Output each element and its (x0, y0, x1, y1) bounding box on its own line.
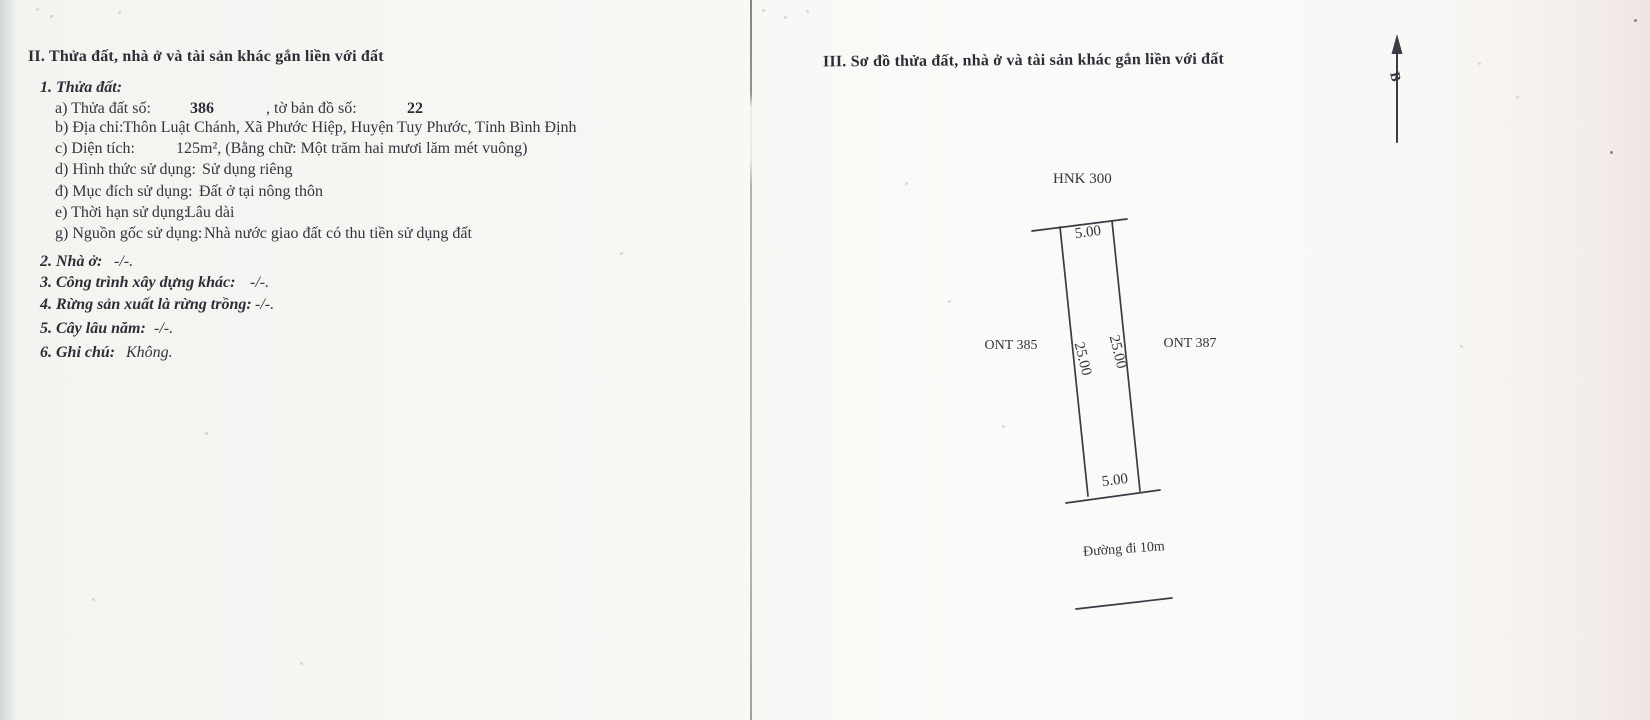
field-address: b) Địa chỉ: Thôn Luật Chánh, Xã Phước Hi… (0, 119, 760, 139)
field-label: đ) Mục đích sử dụng: (55, 183, 193, 201)
area-value: 125m², (Bằng chữ: Một trăm hai mươi lăm … (176, 140, 527, 158)
item-6-notes: 6. Ghi chú: Không. (0, 344, 760, 364)
item-value: -/-. (250, 274, 269, 292)
field-use-term: e) Thời hạn sử dụng: Lâu dài (0, 204, 760, 224)
field-use-origin: g) Nguồn gốc sử dụng: Nhà nước giao đất … (0, 225, 760, 245)
item-5-perennial-trees: 5. Cây lâu năm: -/-. (0, 320, 760, 340)
use-term-value: Lâu dài (186, 204, 234, 222)
scanned-land-certificate-page: II. Thửa đất, nhà ở và tài sản khác gắn … (0, 0, 1650, 720)
speckle (36, 8, 39, 11)
item-4-production-forest: 4. Rừng sản xuất là rừng trồng: -/-. (0, 296, 760, 316)
use-origin-value: Nhà nước giao đất có thu tiền sử dụng đấ… (204, 225, 472, 243)
section-3-heading: III. Sơ đồ thửa đất, nhà ở và tài sản kh… (823, 51, 1224, 72)
field-label: e) Thời hạn sử dụng: (55, 204, 188, 222)
speckle (1516, 96, 1519, 99)
dimension-right: 25.00 (1105, 334, 1130, 371)
section-3-heading-line: III. Sơ đồ thửa đất, nhà ở và tài sản kh… (0, 52, 900, 72)
item-2-house: 2. Nhà ở: -/-. (0, 253, 760, 273)
road-edge-line (1076, 598, 1172, 609)
item-label: 6. Ghi chú: (40, 344, 115, 362)
speckle (948, 300, 951, 303)
address-value: Thôn Luật Chánh, Xã Phước Hiệp, Huyện Tu… (123, 119, 577, 137)
speckle (905, 182, 908, 185)
map-sheet-value: 22 (407, 100, 423, 118)
use-form-value: Sử dụng riêng (202, 161, 292, 179)
subsection-1-heading: 1. Thửa đất: (40, 79, 122, 97)
field-area: c) Diện tích: 125m², (Bằng chữ: Một trăm… (0, 140, 760, 160)
speckle (118, 11, 121, 14)
dimension-top: 5.00 (1074, 223, 1102, 243)
road-label: Đường đi 10m (1083, 539, 1166, 561)
speckle (1460, 345, 1463, 348)
speckle (92, 598, 95, 601)
field-label: , tờ bản đồ số: (266, 100, 357, 118)
item-value: -/-. (154, 320, 173, 338)
item-label: 3. Công trình xây dựng khác: (40, 274, 235, 292)
speckle (762, 9, 765, 12)
item-value: Không. (126, 344, 173, 362)
item-3-other-constructions: 3. Công trình xây dựng khác: -/-. (0, 274, 760, 294)
speckle (784, 16, 787, 19)
dimension-bottom: 5.00 (1101, 471, 1129, 491)
speckle (806, 10, 809, 13)
item-label: 5. Cây lâu năm: (40, 320, 146, 338)
item-value: -/-. (114, 253, 133, 271)
dimension-left: 25.00 (1070, 341, 1095, 378)
field-label: g) Nguồn gốc sử dụng: (55, 225, 202, 243)
speckle (1002, 425, 1005, 428)
subsection-1-heading-line: 1. Thửa đất: (0, 79, 760, 99)
neighbor-label-left: ONT 385 (984, 338, 1037, 354)
field-label: c) Diện tích: (55, 140, 135, 158)
speckle (1634, 19, 1637, 22)
neighbor-label-right: ONT 387 (1163, 336, 1216, 352)
field-label: b) Địa chỉ: (55, 119, 123, 137)
field-use-form: d) Hình thức sử dụng: Sử dụng riêng (0, 161, 760, 181)
north-arrow-icon (1392, 34, 1403, 54)
field-use-purpose: đ) Mục đích sử dụng: Đất ở tại nông thôn (0, 183, 760, 203)
speckle (205, 432, 208, 435)
speckle (1478, 62, 1481, 65)
speckle (300, 662, 303, 665)
field-label: d) Hình thức sử dụng: (55, 161, 196, 179)
neighbor-label-top: HNK 300 (1053, 171, 1112, 188)
plot-bottom-edge (1066, 490, 1160, 503)
speckle (1610, 151, 1613, 154)
item-label: 2. Nhà ở: (40, 253, 102, 271)
item-value: -/-. (255, 296, 274, 314)
north-label: B (1385, 71, 1403, 83)
speckle (50, 15, 53, 18)
field-label: a) Thửa đất số: (55, 100, 151, 118)
use-purpose-value: Đất ở tại nông thôn (199, 183, 323, 201)
item-label: 4. Rừng sản xuất là rừng trồng: (40, 296, 252, 314)
field-parcel-number: a) Thửa đất số: 386 , tờ bản đồ số: 22 (0, 100, 760, 120)
parcel-number-value: 386 (190, 100, 214, 118)
